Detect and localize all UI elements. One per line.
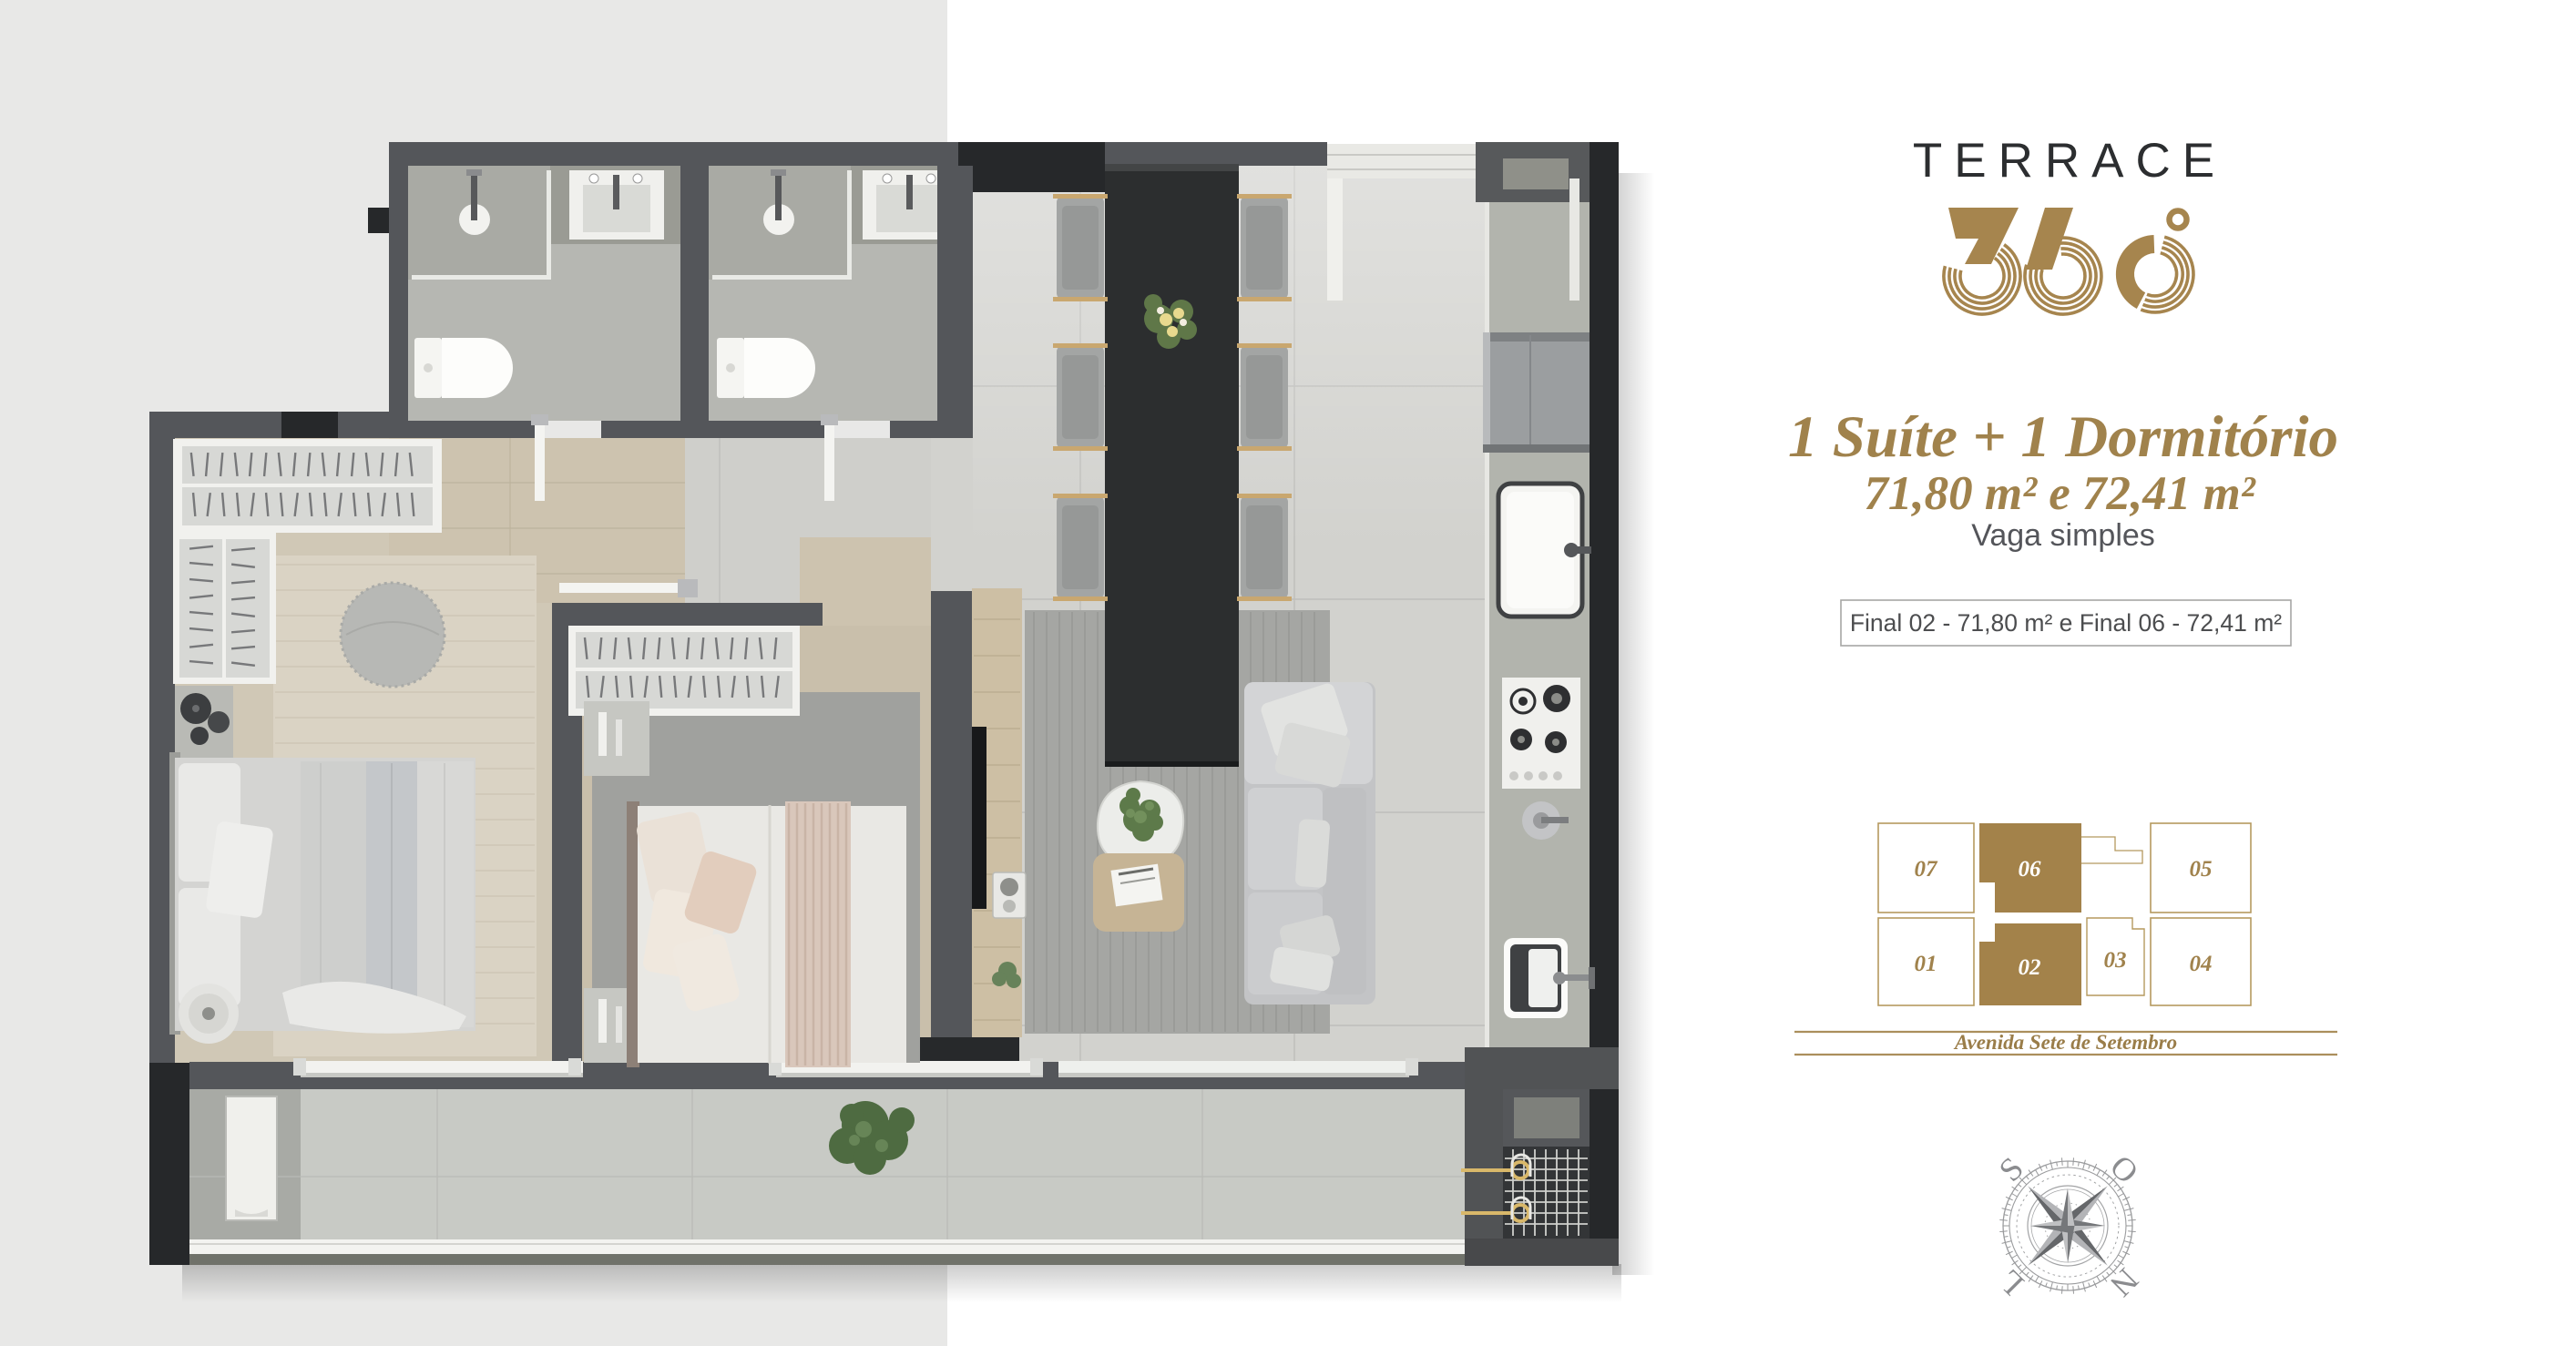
svg-text:06: 06: [2019, 857, 2042, 882]
svg-text:Vaga simples: Vaga simples: [1971, 518, 2155, 553]
svg-text:Avenida Sete de Setembro: Avenida Sete de Setembro: [1953, 1031, 2177, 1054]
svg-text:07: 07: [1915, 857, 1939, 882]
svg-text:03: 03: [2104, 948, 2127, 973]
svg-text:04: 04: [2190, 952, 2213, 976]
svg-text:01: 01: [1915, 952, 1937, 976]
svg-text:05: 05: [2190, 857, 2213, 882]
svg-text:71,80 m² e 72,41 m²: 71,80 m² e 72,41 m²: [1864, 467, 2255, 520]
svg-text:TERRACE: TERRACE: [1913, 134, 2226, 188]
svg-text:02: 02: [2019, 955, 2041, 980]
svg-text:Final 02 - 71,80 m² e Final 06: Final 02 - 71,80 m² e Final 06 - 72,41 m…: [1850, 609, 2282, 637]
svg-text:1 Suíte + 1 Dormitório: 1 Suíte + 1 Dormitório: [1788, 404, 2338, 470]
